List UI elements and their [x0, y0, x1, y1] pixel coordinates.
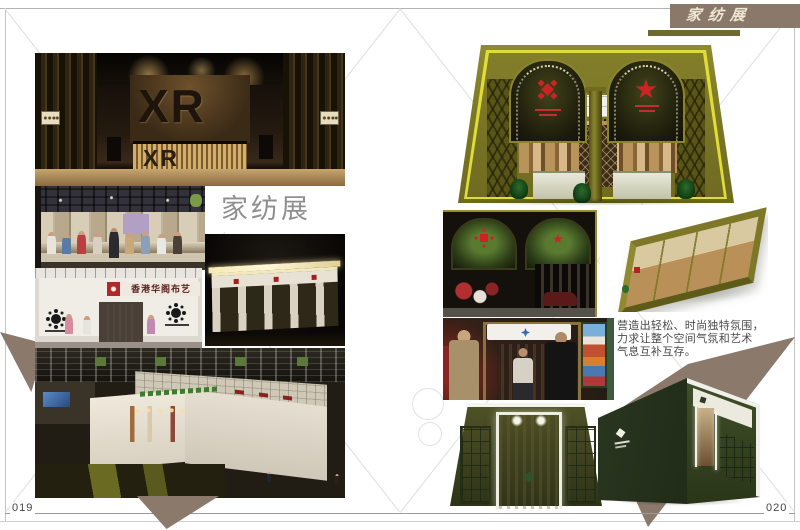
brand-logo-left: [51, 314, 61, 324]
arch-bulbs: [614, 65, 678, 141]
brand-caption-dash: [165, 324, 189, 326]
visitor: [83, 316, 91, 334]
green-lit-arch-left: [451, 218, 517, 270]
visitor: [47, 232, 56, 254]
section-label-text: 家纺展: [205, 186, 345, 232]
visitor: [65, 314, 73, 334]
lightbox-sign-right: [320, 111, 339, 125]
arch-bulbs: [516, 65, 580, 141]
page-number-right: 020: [764, 502, 789, 514]
red-logo-mark: [234, 279, 239, 284]
visitor: [62, 234, 71, 254]
red-ornament-logo: [480, 234, 488, 242]
folio-rule: [5, 513, 795, 514]
red-seal-logo: [107, 282, 120, 296]
blue-screen: [43, 392, 70, 407]
render-booth-isometric: [600, 205, 768, 312]
visitor-head: [519, 348, 528, 357]
red-logo-caption: [635, 105, 659, 107]
circle-decoration: [418, 422, 442, 446]
photo-exhibition-crowd: [35, 186, 205, 270]
arch-right: [607, 59, 685, 143]
center-column: [589, 91, 602, 201]
corner-banner: 家纺展: [670, 4, 800, 28]
side-table: [259, 131, 273, 159]
dark-red-display: [543, 292, 577, 306]
caption-line: 气息互补互存。: [617, 346, 767, 359]
caption-line: 营造出轻松、时尚独特氛围，: [617, 320, 767, 333]
left-rule: [5, 8, 6, 521]
plant: [677, 179, 695, 199]
visitor-body: [513, 358, 533, 400]
visitor: [449, 330, 479, 400]
arch-left: [509, 59, 587, 143]
hanging-green-banner: [155, 357, 166, 366]
facade-header-band: [212, 270, 338, 289]
plant-dot: [622, 285, 629, 293]
door-frame: [695, 405, 697, 467]
logo-caption-dash: [615, 440, 630, 444]
photo-hongkong-booth: 香港华阁布艺: [35, 268, 202, 348]
lit-doorway: [697, 408, 714, 466]
green-lit-arch-right: [525, 218, 591, 270]
design-caption: 营造出轻松、时尚独特氛围， 力求让整个空间气氛和艺术 气息互补互存。: [617, 320, 767, 359]
visitor: [93, 233, 102, 254]
lightbox-sign-left: [41, 111, 60, 125]
red-fabric-display: [447, 270, 507, 308]
hanging-green-banner: [95, 357, 106, 366]
caption-line: 力求让整个空间气氛和艺术: [617, 333, 767, 346]
coffered-ceiling: [35, 186, 205, 212]
gray-floor: [443, 308, 595, 317]
white-top-trim: [466, 403, 586, 407]
visitor: [125, 233, 134, 254]
hall-truss: [35, 268, 202, 278]
red-logo-caption: [535, 109, 561, 111]
plant: [510, 179, 528, 199]
banner-title: 家纺展: [669, 4, 800, 28]
logo-diamond: [616, 428, 626, 438]
photo-entrance-visitors: [443, 318, 614, 400]
visitor: [267, 472, 271, 482]
section-label-box: 家纺展: [205, 186, 345, 232]
brand-flower-logo-right: [171, 308, 181, 318]
lit-entrance-portal: [496, 412, 562, 509]
render-double-arch-booth: [455, 33, 737, 203]
render-green-exterior: [598, 372, 766, 508]
blue-brand-logo: [521, 328, 530, 337]
green-plant: [190, 194, 202, 207]
visitor: [147, 315, 155, 334]
visitor: [157, 234, 166, 254]
xr-wall-logo: XR: [138, 79, 248, 133]
booth-banner-text: 香港华阁布艺: [122, 282, 200, 296]
logo-caption-dash: [615, 445, 626, 449]
red-logo-caption: [539, 114, 557, 116]
red-logo-mark: [312, 275, 317, 280]
bottom-edge-rule: [0, 521, 800, 522]
photo-aerial-hall: [35, 348, 345, 498]
hanging-green-banner: [297, 357, 308, 366]
photo-xr-booth-render: XR XR: [35, 53, 345, 186]
visitor-body: [449, 340, 479, 400]
photo-night-facade-render: [205, 234, 345, 346]
visitor: [109, 228, 119, 258]
red-logo-caption: [639, 110, 655, 112]
reception-desk-right: [613, 171, 671, 199]
catalog-spread: 家纺展 XR XR 家纺展: [0, 0, 800, 530]
green-brand-logo: [523, 471, 534, 482]
green-floor-path: [35, 464, 225, 498]
stained-glass-left: [460, 426, 491, 504]
wood-floor: [35, 169, 345, 186]
stained-glass-right: [565, 426, 596, 504]
visitor: [335, 474, 339, 484]
curtain-display: [107, 304, 135, 344]
door-frame: [715, 412, 717, 470]
right-rule: [794, 8, 795, 521]
visitor: [77, 231, 86, 254]
render-green-entrance: [450, 398, 602, 506]
distant-booths: [35, 382, 95, 424]
visitor-body: [545, 342, 577, 400]
visitor: [141, 232, 150, 254]
page-number-left: 019: [10, 502, 35, 514]
hanging-green-banner: [235, 357, 246, 366]
photo-booth-interior: [443, 210, 597, 317]
booth-entrance: [99, 302, 143, 346]
booth-facade: 香港华阁布艺: [39, 278, 198, 336]
dark-floor: [205, 332, 345, 346]
purple-panel: [123, 214, 149, 234]
xr-desk-logo: XR: [143, 145, 179, 172]
visitor: [545, 332, 577, 400]
booth-entrance-lit: [130, 406, 188, 442]
side-table: [107, 133, 121, 161]
circle-decoration: [412, 388, 444, 420]
red-logo-dot: [634, 267, 640, 273]
visitor: [173, 232, 182, 254]
red-logo-mark: [274, 277, 279, 282]
dark-edge: [35, 186, 41, 270]
visitor: [513, 348, 533, 400]
red-star-logo: [553, 234, 563, 244]
cream-booth-facade: [212, 267, 339, 333]
